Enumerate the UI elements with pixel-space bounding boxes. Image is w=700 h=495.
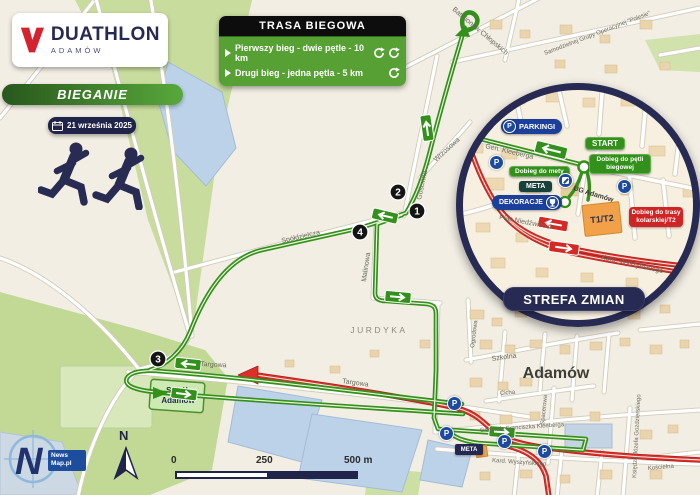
runner-icon [41, 143, 86, 203]
parking-icon: P [447, 396, 462, 411]
legend-item-first-run: Pierwszy bieg - dwie pętle - 10 km [225, 41, 400, 65]
km-marker-1: 1 [409, 203, 425, 219]
svg-text:1: 1 [414, 207, 420, 218]
dobieg-trasy-badge: Dobieg do trasy kolarskiej/T2 [629, 207, 683, 227]
event-date: 21 września 2025 [67, 121, 132, 130]
t1t2-zone: T1/T2 [581, 201, 622, 237]
dekoracje-label: DEKORACJE [499, 199, 543, 206]
brand-subtitle: ADAMÓW [51, 46, 160, 55]
trophy-icon [546, 196, 559, 209]
legend-title: TRASA BIEGOWA [219, 16, 406, 36]
parking-icon: P [489, 155, 504, 170]
start-point-ring [579, 162, 590, 173]
loop-icon [388, 67, 400, 79]
parkingi-badge: P PARKINGI [501, 119, 562, 134]
loop-icons [373, 47, 400, 59]
brand-title: DUATHLON [51, 25, 160, 44]
start-badge: START [585, 137, 625, 150]
map-canvas: Sokół Adamów [0, 0, 700, 495]
route-arrow-right-icon [385, 290, 412, 303]
route-legend: TRASA BIEGOWA Pierwszy bieg - dwie pętle… [219, 16, 406, 86]
scalebar-start: 0 [171, 455, 177, 466]
town-label: Adamów [523, 365, 590, 382]
loop-icons [388, 67, 400, 79]
category-banner: BIEGANIE [2, 84, 183, 105]
km-marker-2: 2 [390, 184, 406, 200]
km-marker-4: 4 [352, 224, 368, 240]
parking-icon: P [537, 444, 552, 459]
parking-icon: P [503, 120, 516, 133]
svg-text:2: 2 [395, 188, 401, 199]
runners-icon [38, 140, 188, 210]
dekoracje-badge: DEKORACJE [492, 195, 562, 210]
parking-icon: P [617, 179, 632, 194]
legend-body: Pierwszy bieg - dwie pętle - 10 km Drugi… [219, 36, 406, 86]
credit-box: News Map.pl [48, 450, 86, 471]
bullet-arrow-icon [225, 69, 231, 77]
newsmap-n-mark: N [15, 441, 44, 483]
street-targowa: Targowa [200, 361, 227, 369]
parking-icon: P [439, 426, 454, 441]
north-label: N [119, 428, 128, 443]
loop-icon [373, 47, 385, 59]
inset-title-banner: STREFA ZMIAN [503, 287, 645, 311]
svg-text:4: 4 [357, 228, 363, 239]
loop-icon [388, 47, 400, 59]
parkingi-label: PARKINGI [519, 122, 555, 131]
calendar-icon [52, 121, 63, 131]
street-goscinna: Gościnna [416, 170, 429, 200]
svg-text:3: 3 [155, 355, 161, 366]
red-arrow-right-icon [548, 240, 579, 255]
scalebar-mid: 250 [256, 455, 273, 466]
event-logo-card: DUATHLON ADAMÓW [12, 13, 168, 67]
runner-icon [96, 148, 141, 208]
bullet-arrow-icon [225, 49, 231, 57]
street-malinowa: Malinowa [361, 252, 372, 282]
street-koscielna: Kościelna [648, 464, 675, 472]
district-label: JURDYKA [350, 325, 407, 335]
event-date-badge: 21 września 2025 [48, 117, 136, 134]
legend-item-second-run: Drugi bieg - jedna pętla - 5 km [225, 65, 400, 81]
route-arrow-left-icon [174, 357, 201, 371]
dobieg-petli-badge: Dobieg do pętli biegowej [589, 154, 651, 174]
meta-badge: META [519, 181, 552, 192]
brand-v-icon [20, 23, 45, 57]
credit-line2: Map.pl [51, 460, 83, 468]
parking-icon: P [497, 434, 512, 449]
scalebar-end: 500 m [344, 455, 372, 466]
meta-badge-main: META [455, 444, 483, 455]
legend-item-label: Pierwszy bieg - dwie pętle - 10 km [235, 43, 369, 63]
km-marker-3: 3 [150, 351, 166, 367]
scalebar [175, 471, 358, 479]
legend-item-label: Drugi bieg - jedna pętla - 5 km [235, 68, 384, 78]
credit-line1: News [51, 452, 83, 460]
registration-icon [558, 173, 573, 188]
